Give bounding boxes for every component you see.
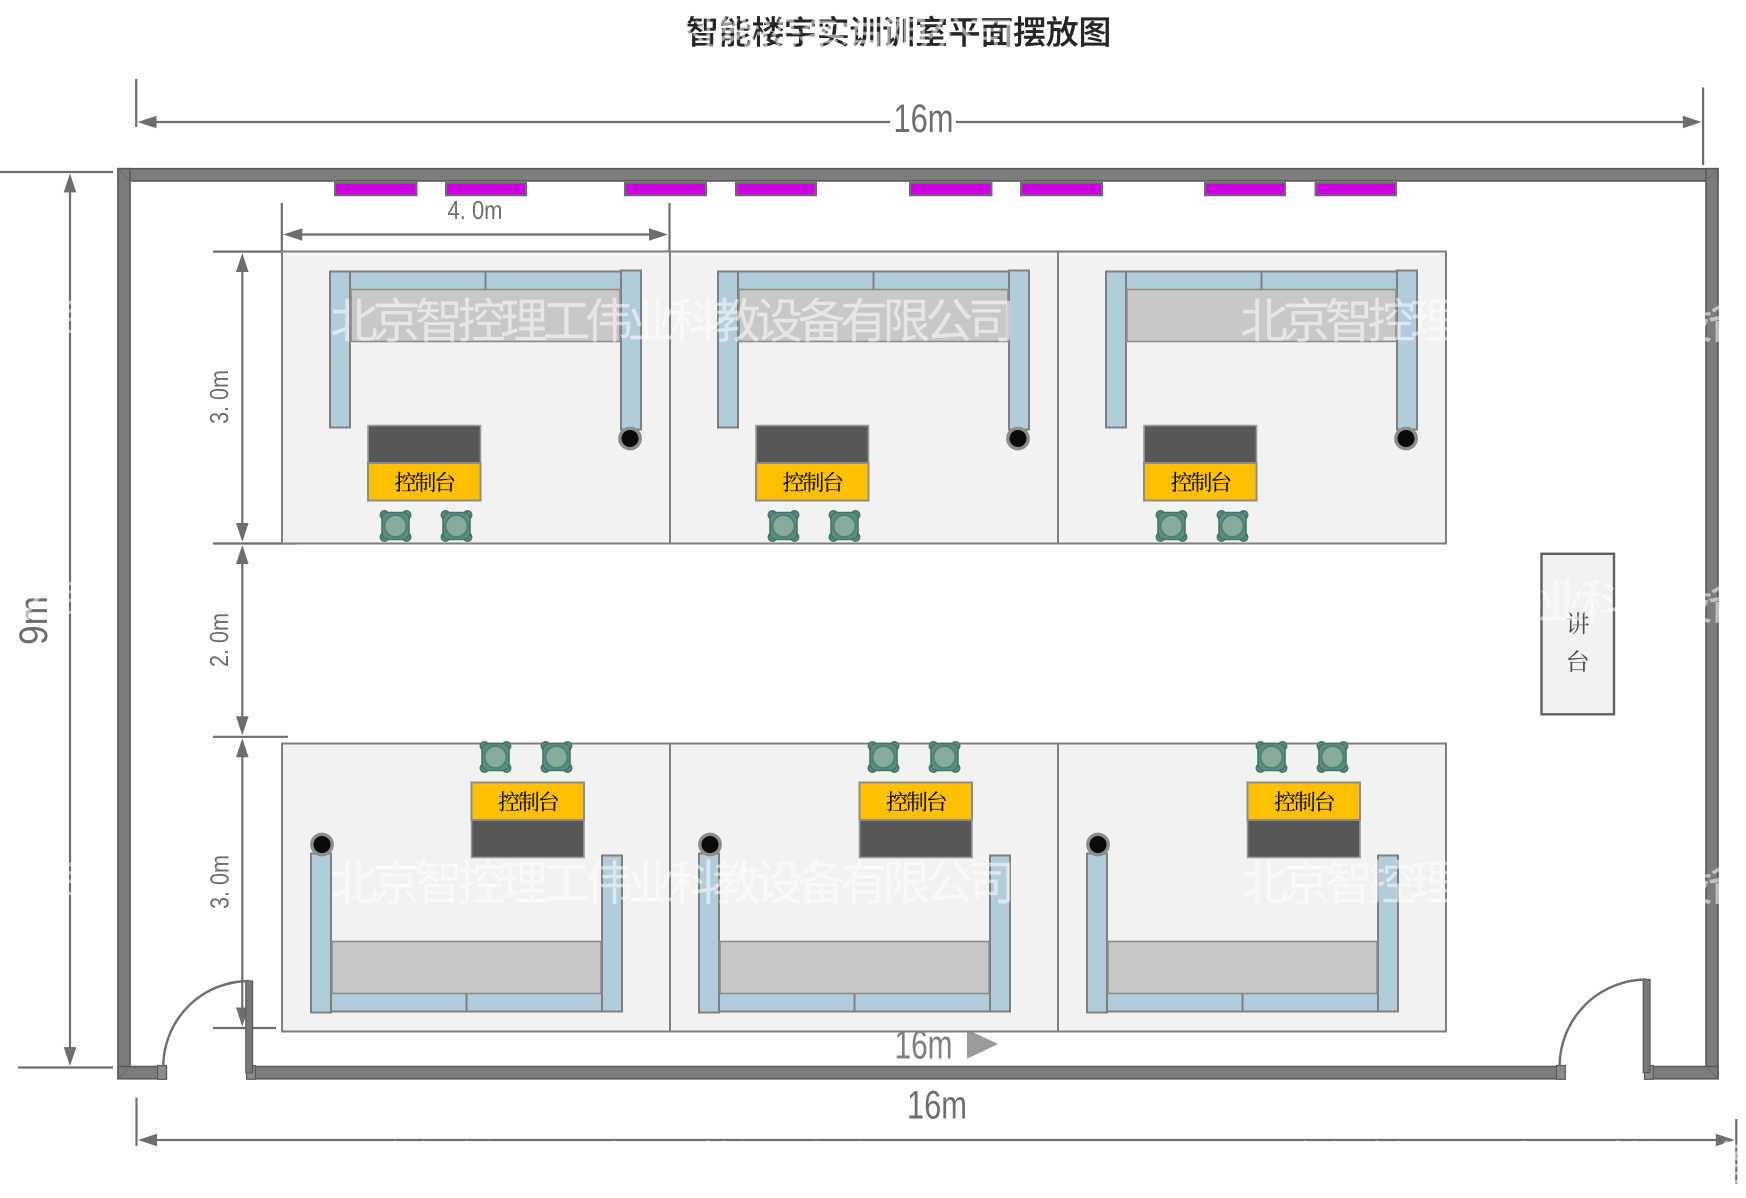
svg-text:16m: 16m — [894, 97, 954, 141]
svg-text:16m: 16m — [907, 1083, 967, 1127]
svg-text:2. 0m: 2. 0m — [204, 613, 234, 667]
svg-text:3. 0m: 3. 0m — [204, 370, 234, 424]
svg-text:3. 0m: 3. 0m — [205, 855, 235, 909]
svg-text:4. 0m: 4. 0m — [448, 195, 503, 225]
